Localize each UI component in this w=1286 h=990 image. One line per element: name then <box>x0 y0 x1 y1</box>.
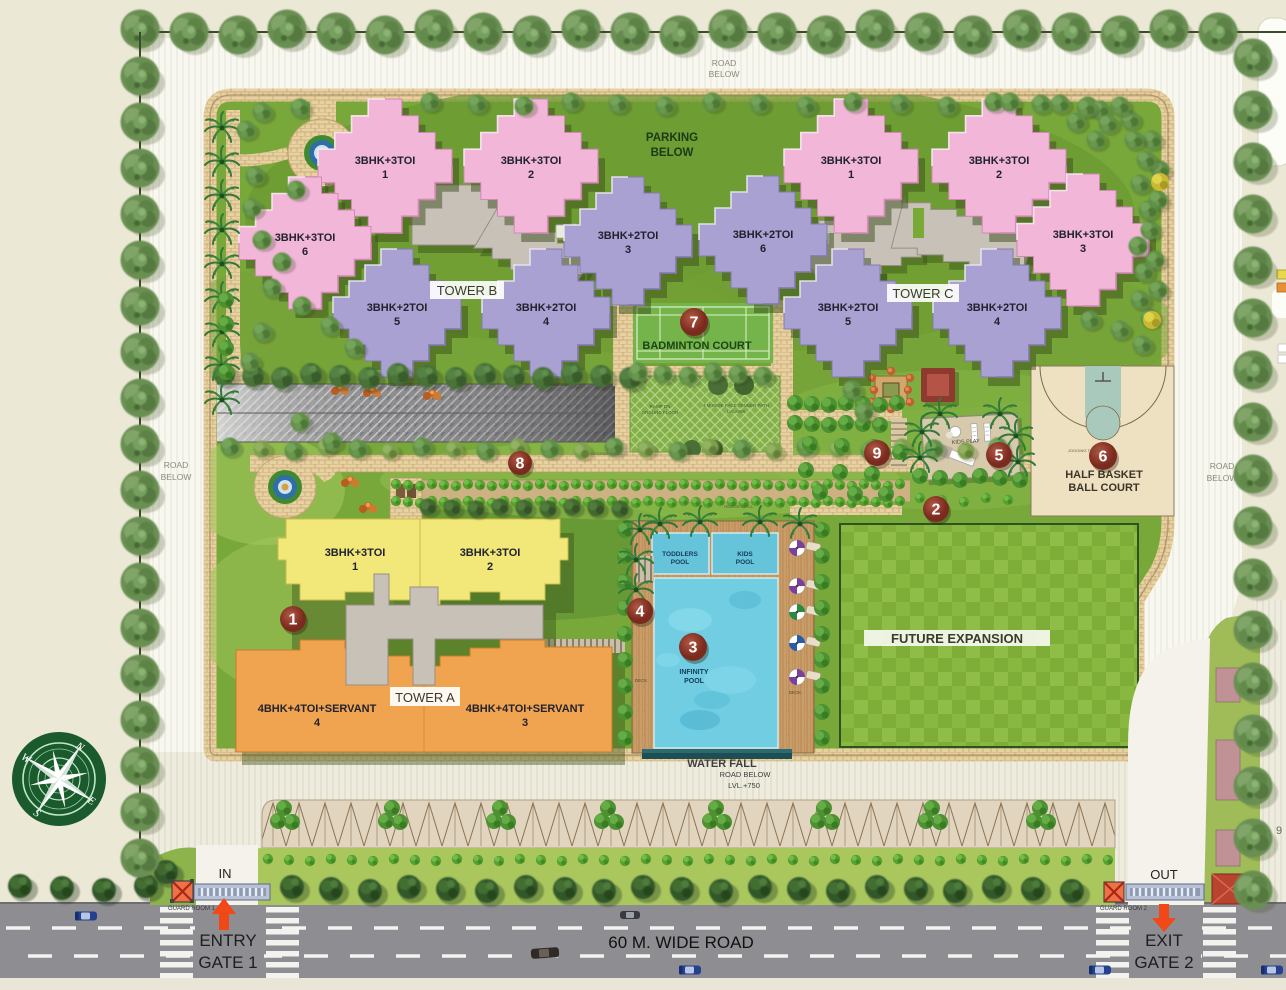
svg-text:3BHK+3TOI: 3BHK+3TOI <box>1053 229 1114 241</box>
svg-text:4 M WIDE FACE TENDER PATH: 4 M WIDE FACE TENDER PATH <box>703 403 769 408</box>
svg-text:ROAD: ROAD <box>712 58 737 68</box>
svg-text:7: 7 <box>690 315 699 332</box>
svg-text:ROAD BELOW: ROAD BELOW <box>720 770 772 779</box>
svg-text:3BHK+2TOI: 3BHK+2TOI <box>367 302 428 314</box>
svg-text:60 M. WIDE ROAD: 60 M. WIDE ROAD <box>608 933 753 952</box>
svg-text:POOL: POOL <box>684 678 705 685</box>
svg-text:3: 3 <box>625 244 631 256</box>
svg-text:5: 5 <box>995 448 1004 465</box>
svg-text:ROAD: ROAD <box>1210 461 1235 471</box>
svg-text:GATE 1: GATE 1 <box>198 953 257 972</box>
svg-text:3BHK+3TOI: 3BHK+3TOI <box>325 547 386 559</box>
svg-text:DECK: DECK <box>635 678 648 683</box>
svg-text:IN: IN <box>219 866 232 881</box>
svg-text:2: 2 <box>932 502 941 519</box>
svg-text:3BHK+3TOI: 3BHK+3TOI <box>275 232 336 244</box>
svg-text:FUTURE EXPANSION: FUTURE EXPANSION <box>891 631 1023 646</box>
svg-text:RAMP DN: RAMP DN <box>650 404 671 409</box>
svg-text:JOGGING TRACK: JOGGING TRACK <box>1068 448 1101 453</box>
svg-text:6: 6 <box>302 246 308 258</box>
svg-text:BELOW: BELOW <box>651 147 694 159</box>
svg-text:6: 6 <box>760 243 766 255</box>
svg-text:9: 9 <box>1276 825 1282 837</box>
svg-text:OUT: OUT <box>1150 867 1178 882</box>
svg-text:1: 1 <box>848 169 854 181</box>
svg-text:3BHK+2TOI: 3BHK+2TOI <box>818 302 879 314</box>
svg-text:KIDS: KIDS <box>737 551 753 558</box>
svg-text:4BHK+4TOI+SERVANT: 4BHK+4TOI+SERVANT <box>466 703 585 715</box>
svg-text:3BHK+2TOI: 3BHK+2TOI <box>598 230 659 242</box>
svg-text:GUARD ROOM 2: GUARD ROOM 2 <box>1100 906 1148 912</box>
svg-text:DECK: DECK <box>789 690 802 695</box>
svg-text:1: 1 <box>289 612 298 629</box>
svg-text:GATE 2: GATE 2 <box>1134 953 1193 972</box>
svg-text:3BHK+2TOI: 3BHK+2TOI <box>967 302 1028 314</box>
svg-text:4: 4 <box>543 316 550 328</box>
svg-text:JOGGING TRACK: JOGGING TRACK <box>590 451 623 456</box>
svg-text:4: 4 <box>994 316 1001 328</box>
svg-text:HEDGE WALL: HEDGE WALL <box>724 504 754 509</box>
svg-text:4: 4 <box>636 604 645 621</box>
svg-text:BELOW: BELOW <box>161 472 192 482</box>
svg-text:8: 8 <box>516 456 525 473</box>
svg-text:TODDLERS: TODDLERS <box>662 551 698 558</box>
svg-text:3BHK+3TOI: 3BHK+3TOI <box>501 155 562 167</box>
svg-text:3: 3 <box>522 717 528 729</box>
svg-text:4: 4 <box>314 717 321 729</box>
svg-text:2: 2 <box>487 561 493 573</box>
svg-text:4BHK+4TOI+SERVANT: 4BHK+4TOI+SERVANT <box>258 703 377 715</box>
svg-text:POOL: POOL <box>671 559 689 566</box>
svg-text:LVL.+750: LVL.+750 <box>728 781 760 790</box>
svg-text:POOL: POOL <box>736 559 754 566</box>
svg-text:GUARD ROOM 1: GUARD ROOM 1 <box>168 906 216 912</box>
svg-text:3BHK+3TOI: 3BHK+3TOI <box>969 155 1030 167</box>
svg-text:ROAD: ROAD <box>164 460 189 470</box>
svg-text:9: 9 <box>873 446 882 463</box>
svg-text:2: 2 <box>528 169 534 181</box>
svg-text:1: 1 <box>352 561 358 573</box>
svg-text:TOWER A: TOWER A <box>395 690 455 705</box>
svg-text:5: 5 <box>845 316 851 328</box>
svg-text:BELOW: BELOW <box>1207 473 1238 483</box>
svg-text:LVL+888: LVL+888 <box>727 409 745 414</box>
svg-text:2: 2 <box>996 169 1002 181</box>
svg-text:5: 5 <box>394 316 400 328</box>
svg-text:EXIT: EXIT <box>1145 931 1183 950</box>
svg-text:3BHK+3TOI: 3BHK+3TOI <box>460 547 521 559</box>
svg-text:TOWER C: TOWER C <box>892 286 953 301</box>
svg-text:BELOW: BELOW <box>709 69 740 79</box>
svg-text:3: 3 <box>1080 243 1086 255</box>
svg-text:3BHK+2TOI: 3BHK+2TOI <box>516 302 577 314</box>
svg-text:GROUND FLOOR: GROUND FLOOR <box>642 410 680 415</box>
svg-text:BADMINTON COURT: BADMINTON COURT <box>642 340 751 352</box>
svg-text:TOWER B: TOWER B <box>437 283 497 298</box>
svg-text:3BHK+3TOI: 3BHK+3TOI <box>355 155 416 167</box>
svg-text:3: 3 <box>689 640 698 657</box>
svg-text:WATER FALL: WATER FALL <box>687 758 757 770</box>
svg-text:3BHK+2TOI: 3BHK+2TOI <box>733 229 794 241</box>
svg-text:3BHK+3TOI: 3BHK+3TOI <box>821 155 882 167</box>
svg-text:BALL COURT: BALL COURT <box>1068 482 1140 494</box>
svg-text:ENTRY: ENTRY <box>199 931 256 950</box>
svg-text:1: 1 <box>382 169 388 181</box>
svg-text:PARKING: PARKING <box>646 132 698 144</box>
svg-text:INFINITY: INFINITY <box>679 669 708 676</box>
